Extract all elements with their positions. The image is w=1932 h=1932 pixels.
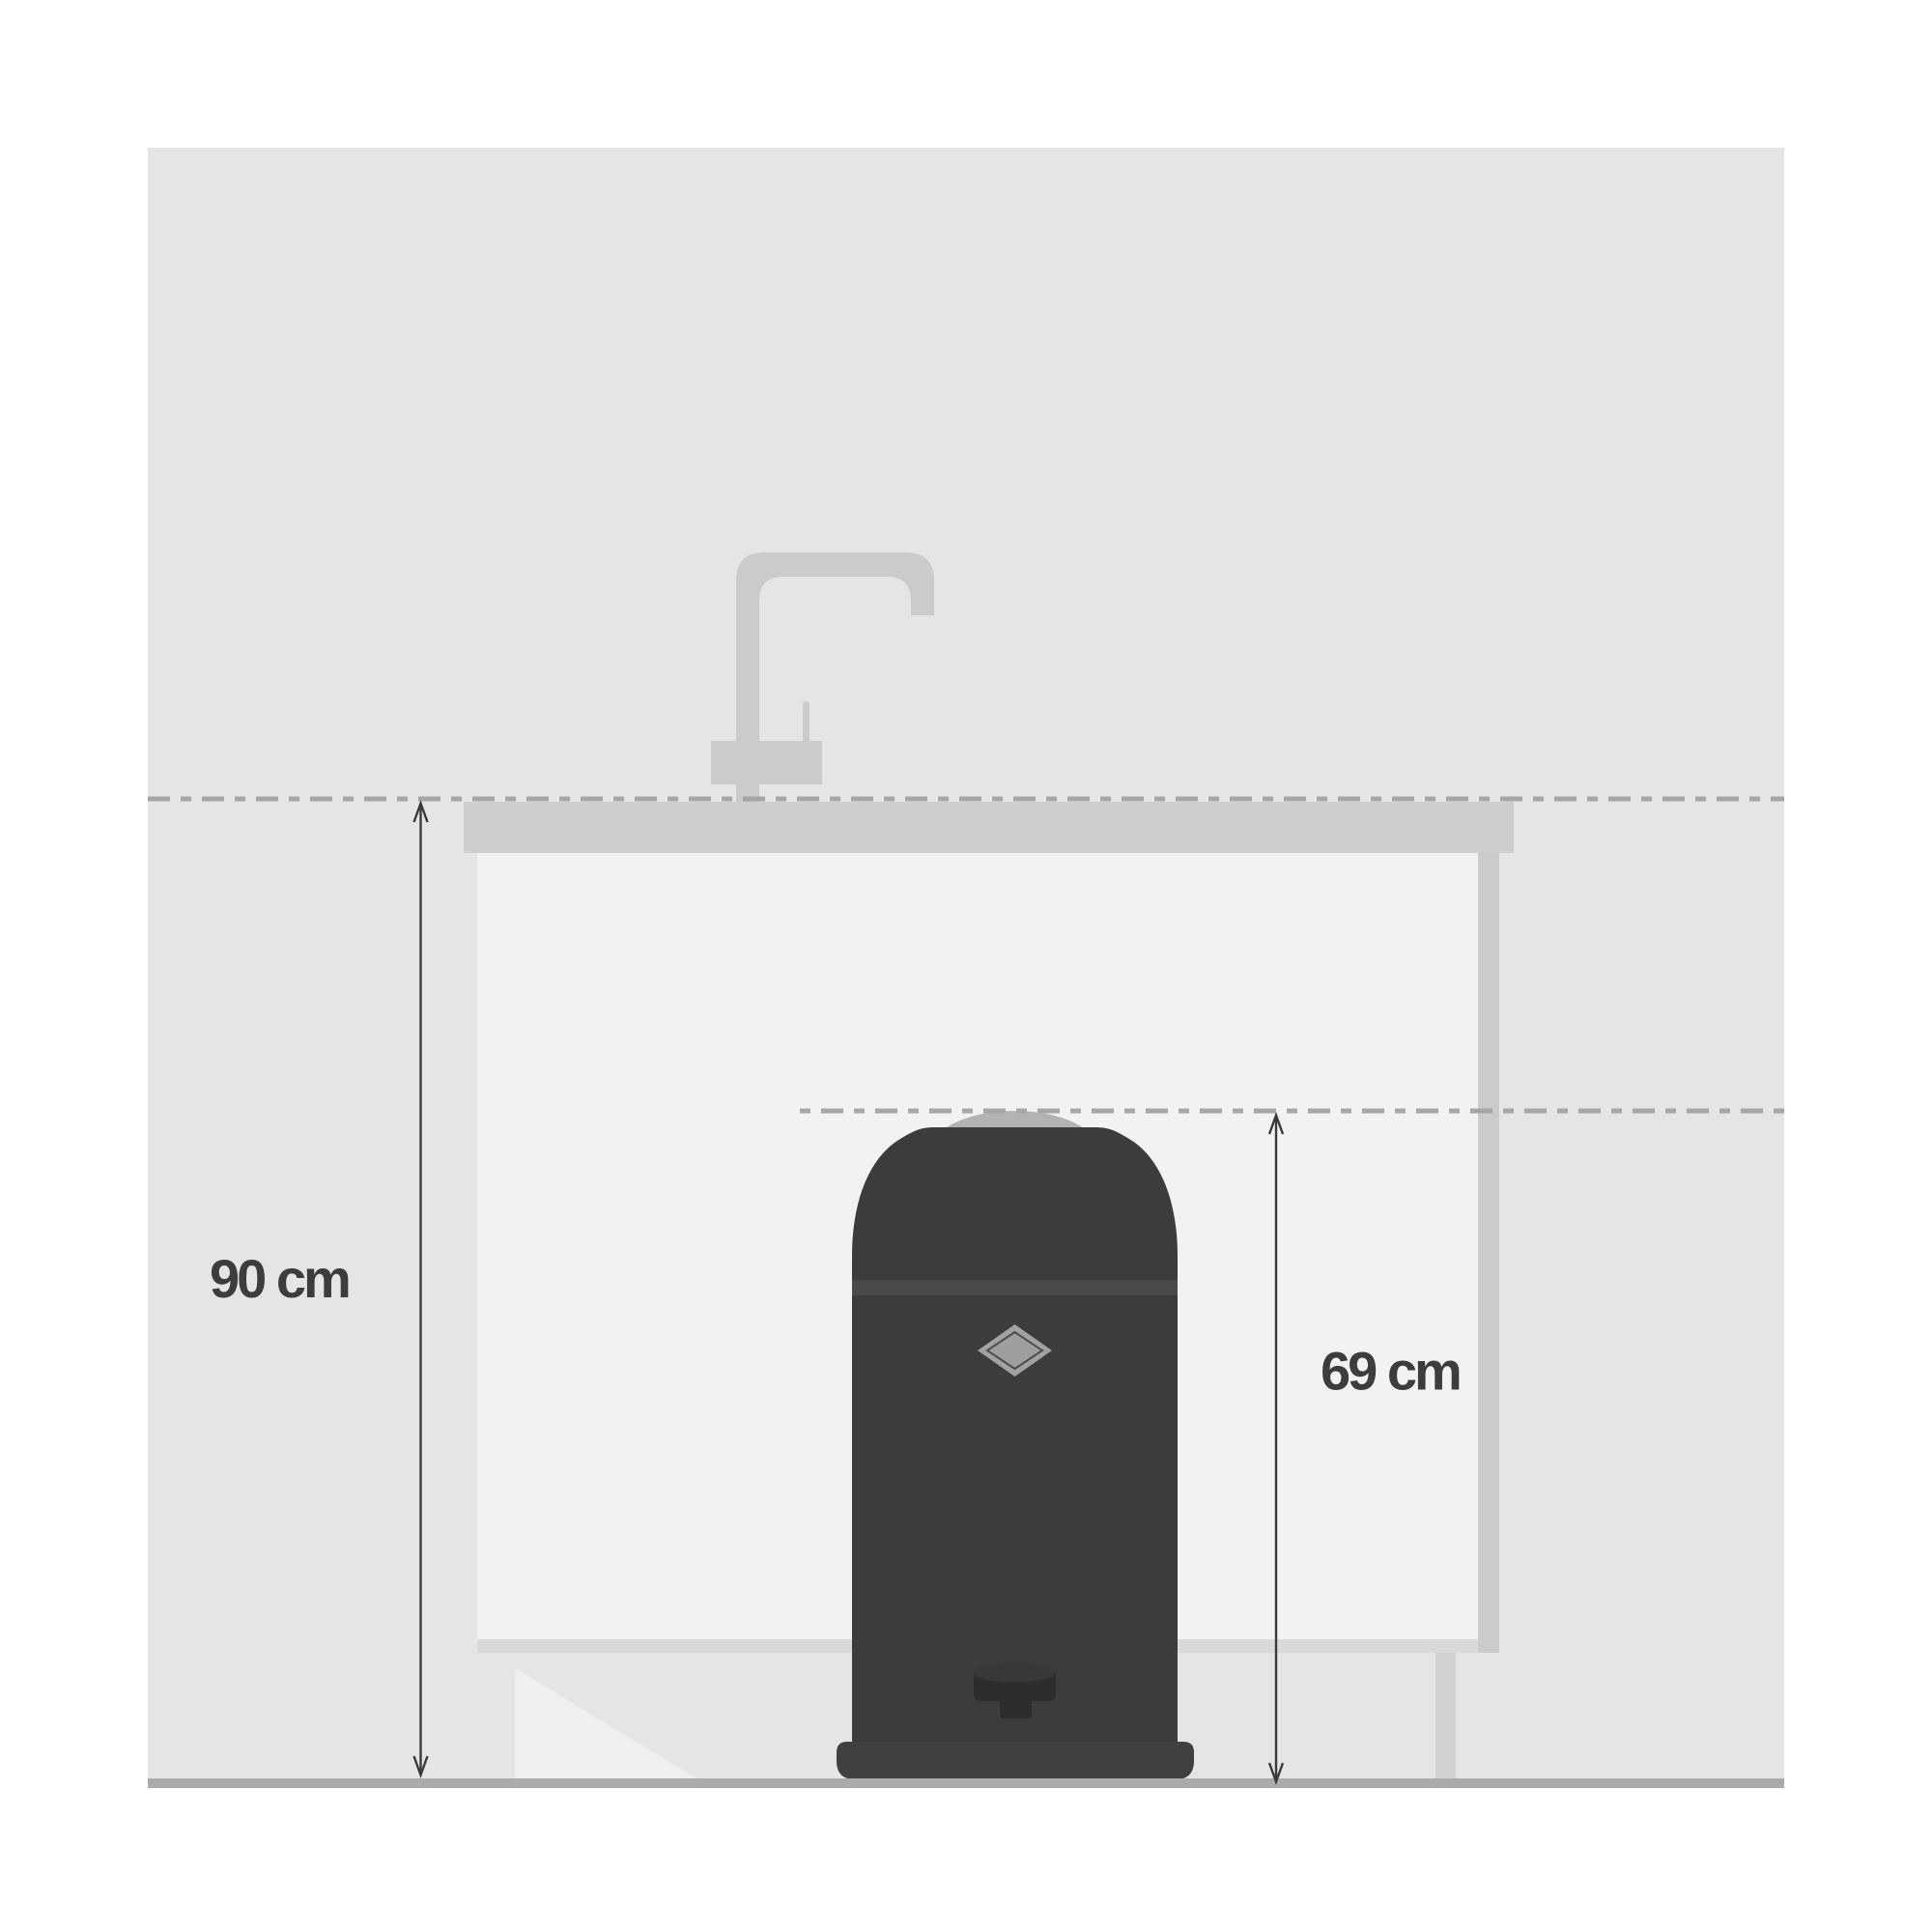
svg-text:90 cm: 90 cm — [210, 1248, 349, 1309]
svg-text:69 cm: 69 cm — [1321, 1341, 1460, 1402]
